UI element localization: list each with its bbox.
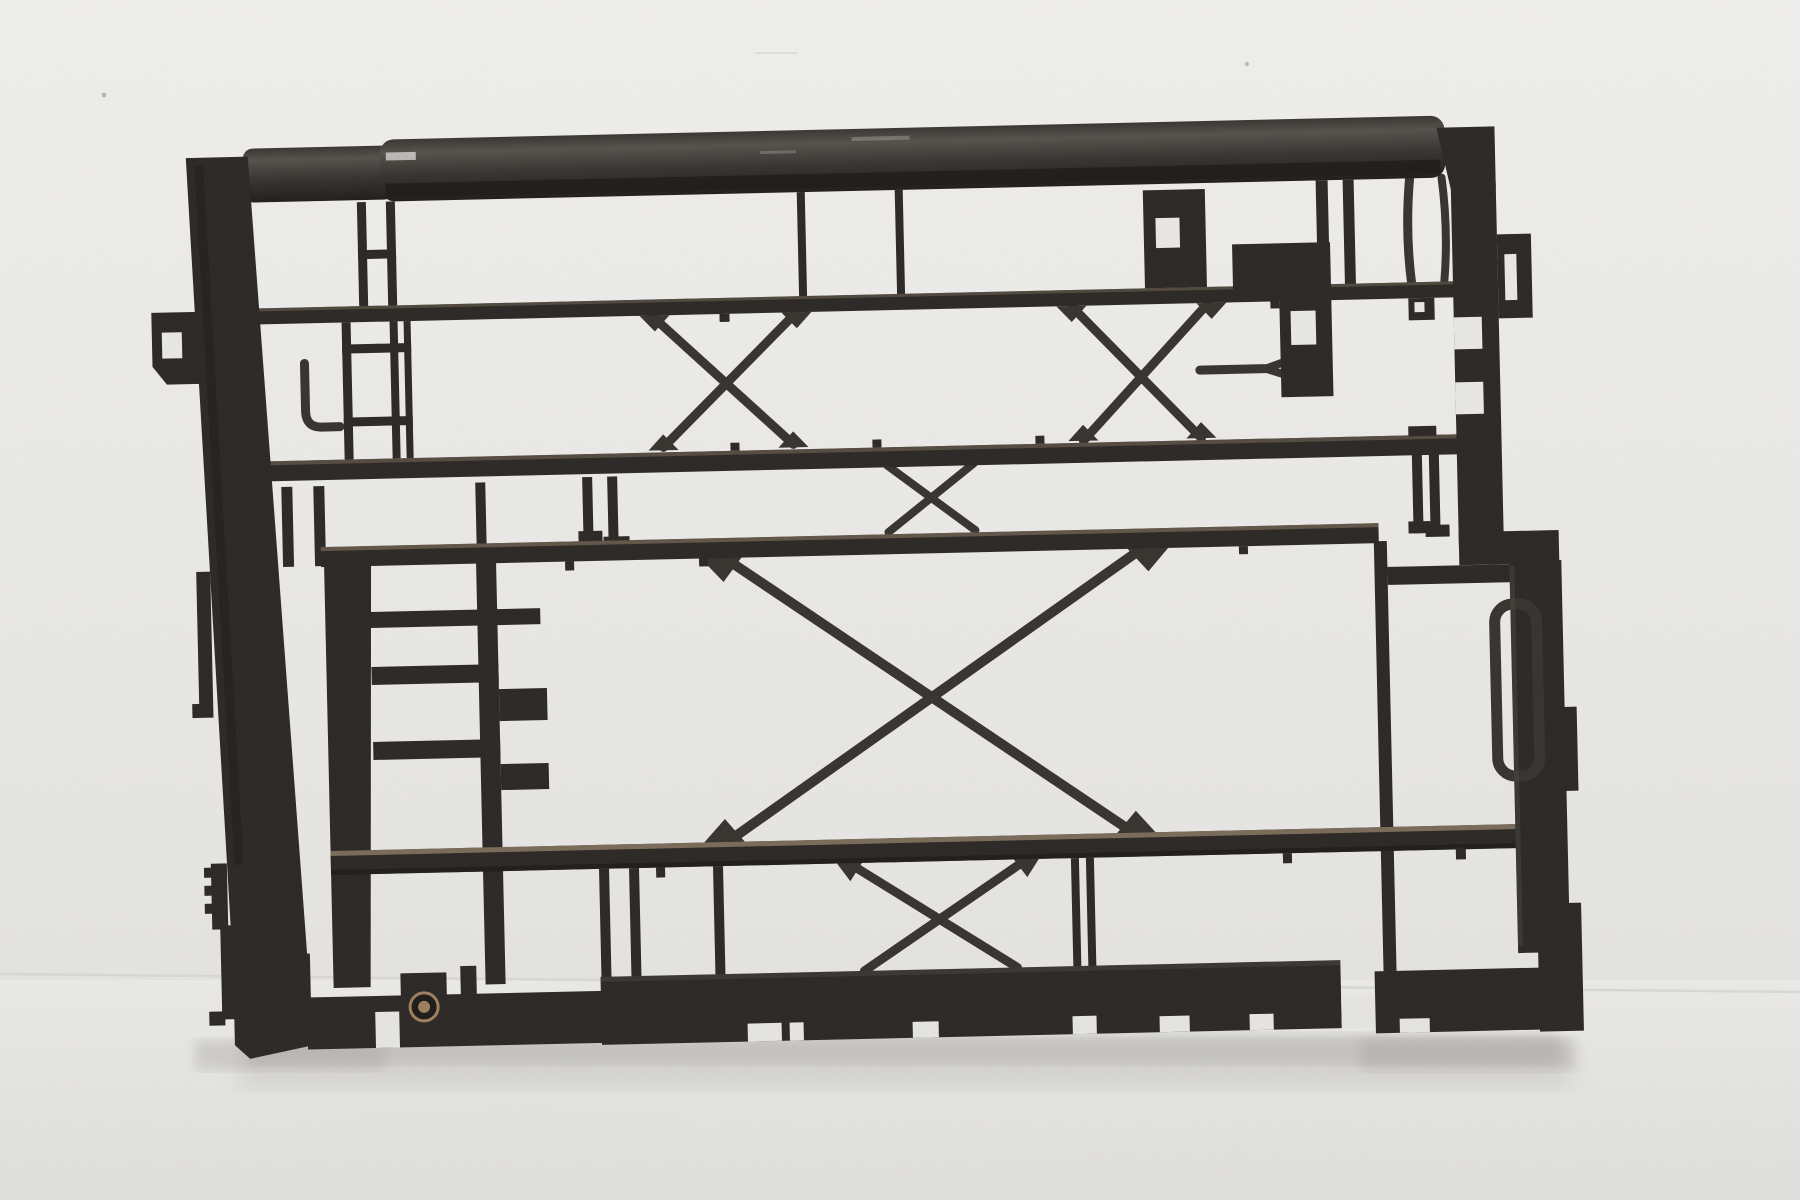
scene-svg xyxy=(0,0,1800,1200)
grain-overlay xyxy=(0,0,1800,1200)
photo xyxy=(0,0,1800,1200)
